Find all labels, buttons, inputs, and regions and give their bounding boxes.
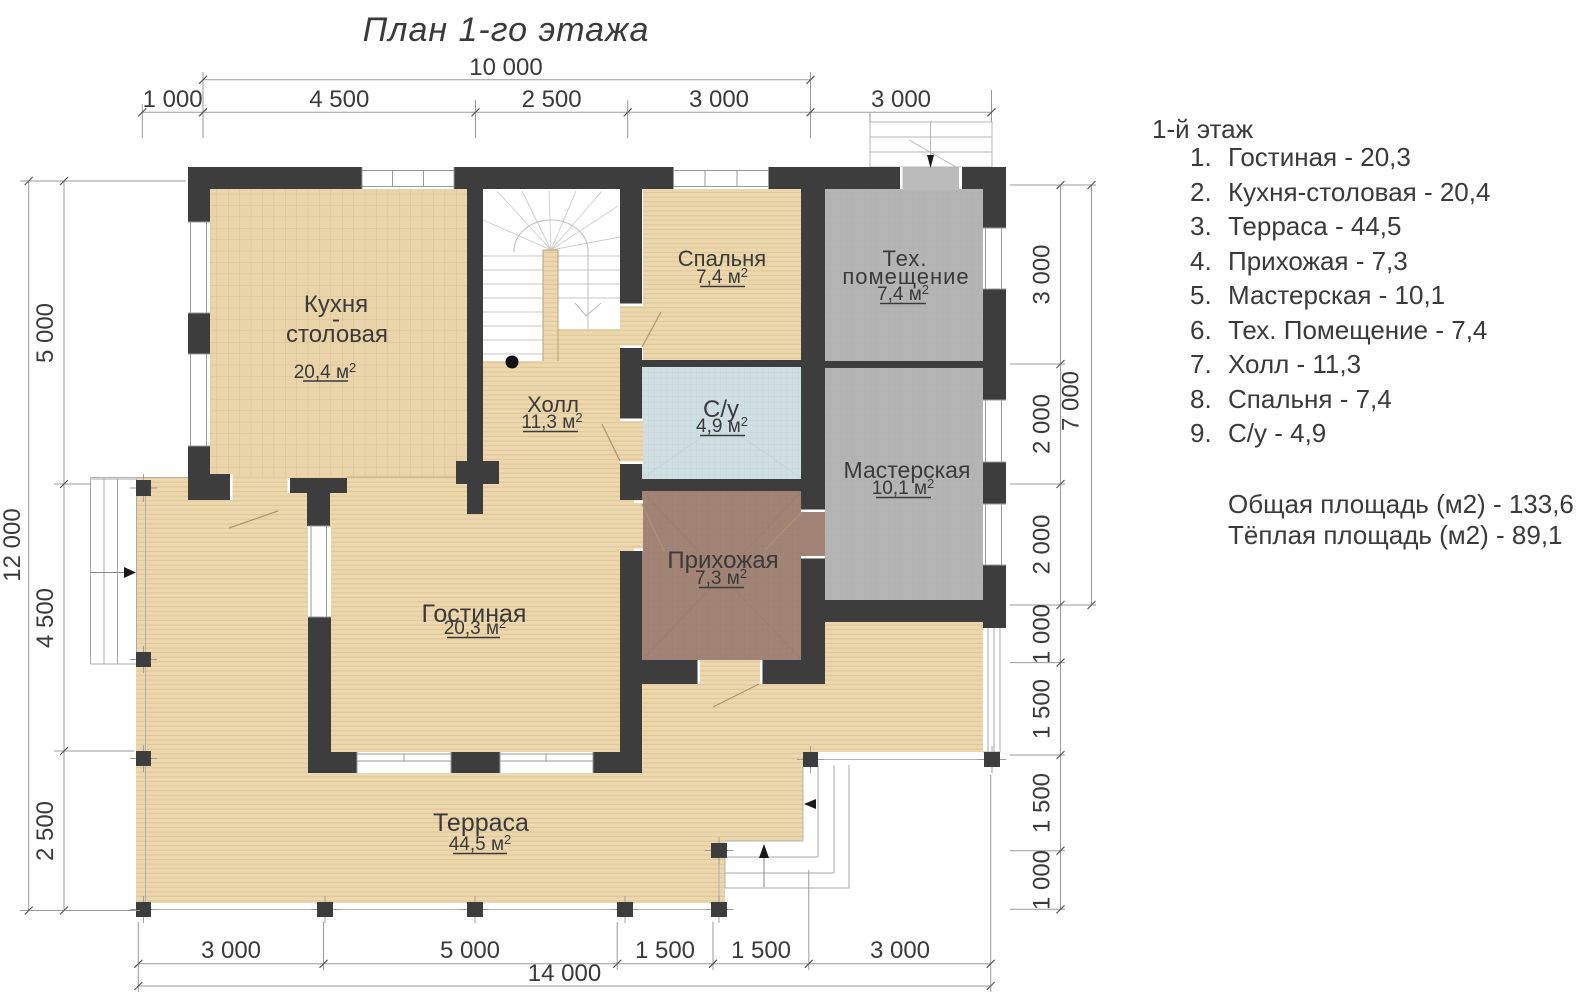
svg-text:1 000: 1 000 [1029,604,1056,664]
svg-text:1 500: 1 500 [1029,679,1056,739]
svg-text:7,4 м2: 7,4 м2 [696,265,748,288]
svg-text:14 000: 14 000 [528,960,601,987]
svg-text:С/у - 4,9: С/у - 4,9 [1228,418,1326,448]
svg-text:Прихожая - 7,3: Прихожая - 7,3 [1228,246,1408,276]
svg-text:7,3 м2: 7,3 м2 [695,566,747,589]
svg-text:3 000: 3 000 [201,937,261,964]
svg-text:4,9 м2: 4,9 м2 [696,414,748,437]
svg-text:Мастерская - 10,1: Мастерская - 10,1 [1228,280,1445,310]
svg-text:8.: 8. [1190,384,1212,414]
svg-text:Общая площадь (м2) - 133,6: Общая площадь (м2) - 133,6 [1228,489,1574,519]
svg-text:Тех. Помещение - 7,4: Тех. Помещение - 7,4 [1228,315,1487,345]
svg-text:1 000: 1 000 [1029,850,1056,910]
svg-text:Терраса - 44,5: Терраса - 44,5 [1228,211,1401,241]
svg-text:1 000: 1 000 [143,86,203,113]
svg-text:4 500: 4 500 [32,588,59,648]
svg-text:4 500: 4 500 [309,86,369,113]
svg-text:12 000: 12 000 [0,508,26,581]
svg-text:5.: 5. [1190,280,1212,310]
svg-text:2 000: 2 000 [1029,514,1056,574]
svg-text:2 500: 2 500 [522,86,582,113]
svg-text:5 000: 5 000 [32,303,59,363]
svg-text:Тёплая площадь (м2) - 89,1: Тёплая площадь (м2) - 89,1 [1228,520,1563,550]
svg-text:3 000: 3 000 [870,937,930,964]
svg-text:7 000: 7 000 [1058,371,1085,431]
svg-text:6.: 6. [1190,315,1212,345]
svg-text:10 000: 10 000 [469,54,542,81]
svg-text:5 000: 5 000 [440,937,500,964]
svg-text:3 000: 3 000 [1029,244,1056,304]
svg-text:44,5 м2: 44,5 м2 [449,832,512,855]
svg-text:1.: 1. [1190,142,1212,172]
svg-text:2 000: 2 000 [1029,394,1056,454]
svg-text:11,3 м2: 11,3 м2 [521,410,582,433]
svg-text:Холл - 11,3: Холл - 11,3 [1228,349,1361,379]
svg-text:Кухня-столовая - 20,4: Кухня-столовая - 20,4 [1228,177,1490,207]
svg-text:столовая: столовая [286,321,388,348]
svg-text:1 500: 1 500 [1029,773,1056,833]
svg-text:3.: 3. [1190,211,1212,241]
svg-text:2 500: 2 500 [32,801,59,861]
svg-text:3 000: 3 000 [871,86,931,113]
svg-text:2.: 2. [1190,177,1212,207]
svg-text:20,4 м2: 20,4 м2 [294,360,357,383]
svg-text:4.: 4. [1190,246,1212,276]
svg-text:Спальня - 7,4: Спальня - 7,4 [1228,384,1392,414]
svg-text:1 500: 1 500 [731,937,791,964]
svg-text:20,3 м2: 20,3 м2 [444,616,507,639]
svg-text:9.: 9. [1190,418,1212,448]
svg-text:Терраса: Терраса [433,809,529,837]
svg-text:План 1-го этажа: План 1-го этажа [363,11,650,49]
svg-text:10,1 м2: 10,1 м2 [872,476,935,499]
svg-text:1-й этаж: 1-й этаж [1152,114,1254,144]
svg-text:7,4 м2: 7,4 м2 [877,282,929,305]
svg-text:Гостиная - 20,3: Гостиная - 20,3 [1228,142,1411,172]
svg-text:3 000: 3 000 [689,86,749,113]
svg-text:7.: 7. [1190,349,1212,379]
svg-text:1 500: 1 500 [635,937,695,964]
